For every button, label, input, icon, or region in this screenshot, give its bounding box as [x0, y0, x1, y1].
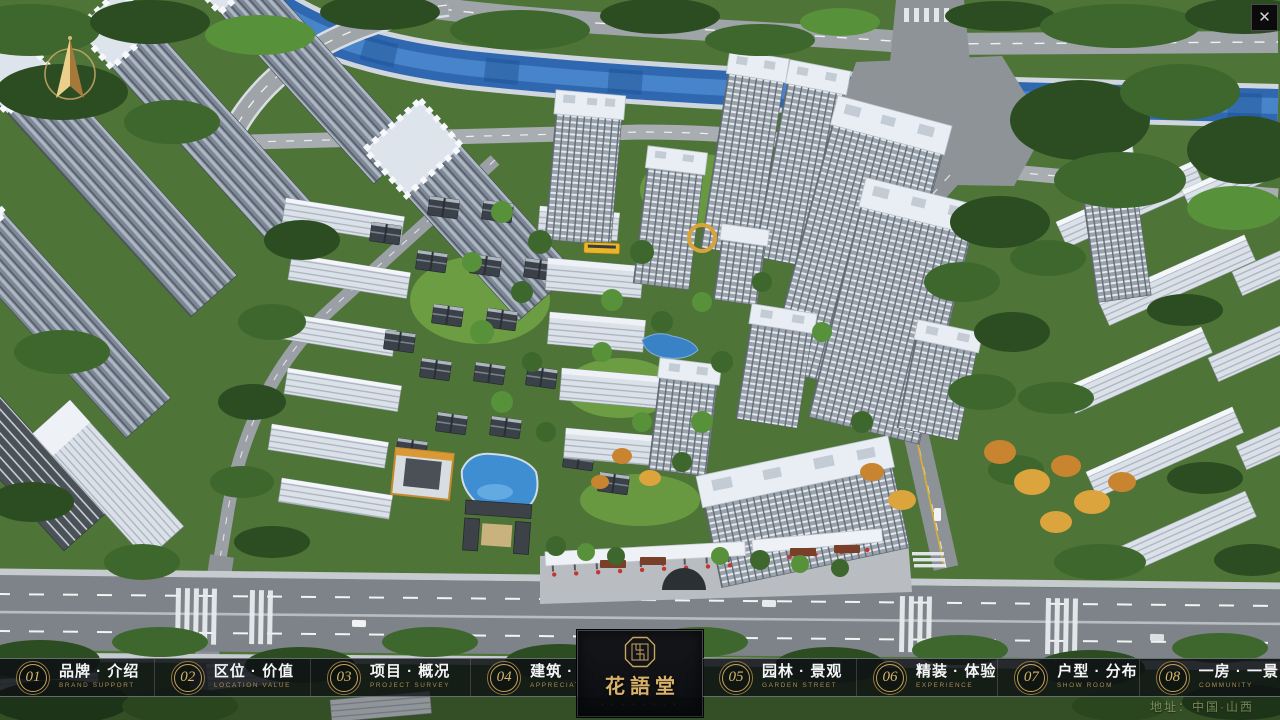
nav-item-location[interactable]: 02 区位 · 价值 LOCATION VALUE	[155, 659, 311, 696]
nav-label: 品牌 · 介绍	[59, 664, 154, 680]
nav-label: 户型 · 分布	[1057, 664, 1137, 680]
nav-item-brand[interactable]: 01 品牌 · 介绍 BRAND SUPPORT	[0, 659, 155, 696]
nav-number-badge: 05	[719, 661, 753, 695]
nav-sublabel: COMMUNITY	[1199, 682, 1263, 689]
nav-label: 精装 · 体验	[916, 664, 996, 680]
nav-number-badge: 01	[16, 661, 50, 695]
nav-sublabel: GARDEN STREET	[762, 682, 837, 689]
masterplan-3d-view[interactable]	[0, 0, 1280, 720]
nav-group-right: 05 园林 · 景观 GARDEN STREET 06 精装 · 体验 EXPE…	[703, 658, 1280, 697]
nav-number-badge: 06	[873, 661, 907, 695]
nav-number-badge: 02	[171, 661, 205, 695]
nav-number-badge: 04	[487, 661, 521, 695]
nav-label: 园林 · 景观	[762, 664, 856, 680]
north-compass-icon	[38, 32, 102, 106]
presentation-stage: ✕ 01 品牌 · 介绍 BRAND SUPPORT 02 区位 · 价值 LO…	[0, 0, 1280, 720]
nav-sublabel: BRAND SUPPORT	[59, 682, 135, 689]
nav-sublabel: EXPERIENCE	[916, 682, 980, 689]
nav-item-views[interactable]: 08 一房 · 一景 COMMUNITY	[1140, 659, 1280, 696]
nav-item-interior[interactable]: 06 精装 · 体验 EXPERIENCE	[857, 659, 998, 696]
logo-title: 花語堂	[600, 670, 680, 699]
nav-sublabel: SHOW ROOM	[1057, 682, 1121, 689]
nav-group-left: 01 品牌 · 介绍 BRAND SUPPORT 02 区位 · 价值 LOCA…	[0, 658, 577, 697]
nav-label: 项目 · 概况	[370, 664, 470, 680]
project-address: 地址：中国·山西	[1150, 698, 1254, 715]
logo-tagline: · · · · · · · ·	[601, 701, 678, 708]
nav-item-floorplan[interactable]: 07 户型 · 分布 SHOW ROOM	[998, 659, 1139, 696]
logo-panel[interactable]: 花語堂 · · · · · · · ·	[577, 630, 703, 717]
nav-label: 一房 · 一景	[1199, 664, 1279, 680]
nav-number-badge: 03	[327, 661, 361, 695]
nav-number-badge: 08	[1156, 661, 1190, 695]
close-button[interactable]: ✕	[1251, 4, 1278, 31]
seal-emblem-icon	[624, 636, 656, 668]
nav-number-badge: 07	[1014, 661, 1048, 695]
nav-item-garden[interactable]: 05 园林 · 景观 GARDEN STREET	[703, 659, 857, 696]
nav-sublabel: LOCATION VALUE	[214, 682, 291, 689]
nav-sublabel: PROJECT SURVEY	[370, 682, 450, 689]
nav-item-project[interactable]: 03 项目 · 概况 PROJECT SURVEY	[311, 659, 471, 696]
nav-label: 区位 · 价值	[214, 664, 310, 680]
